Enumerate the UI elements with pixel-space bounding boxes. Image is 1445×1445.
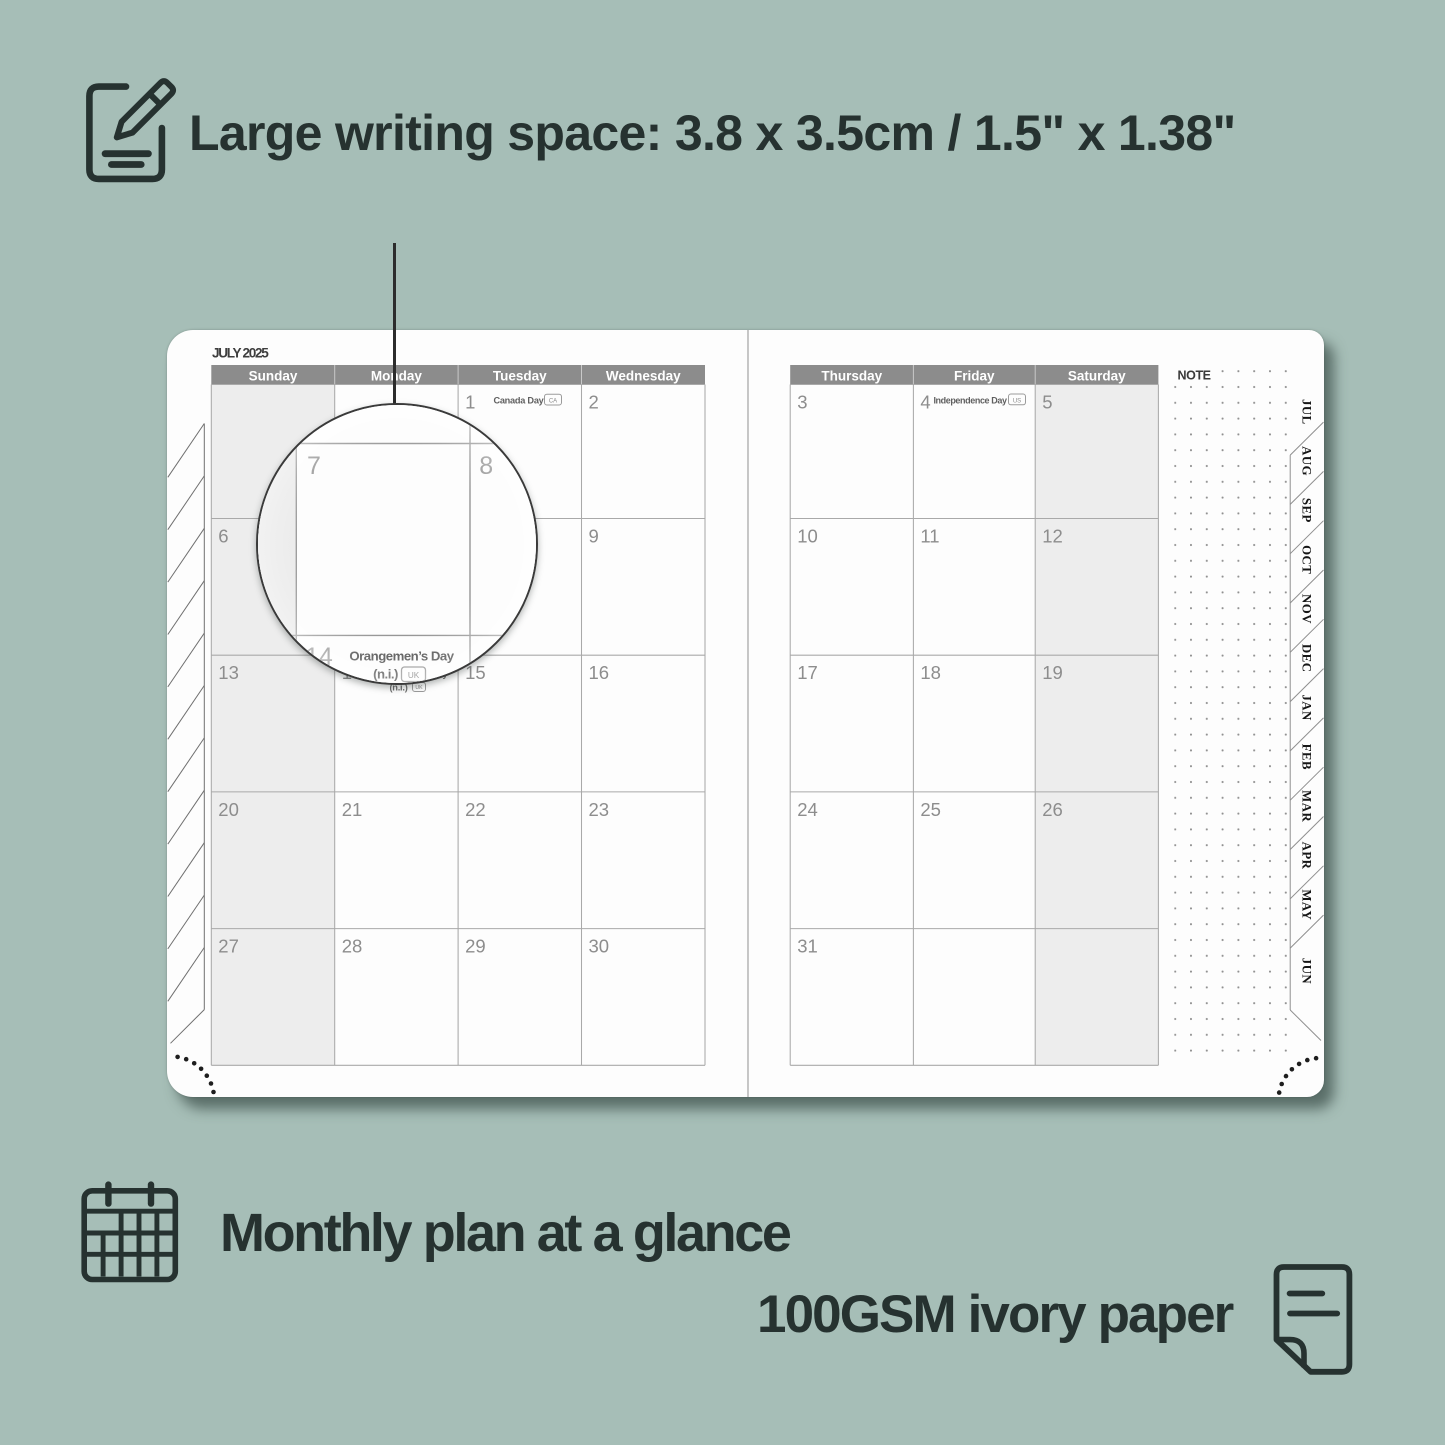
svg-text:JUL: JUL [1299,399,1313,425]
svg-text:NOTE: NOTE [1177,369,1210,383]
svg-text:17: 17 [797,662,818,683]
svg-text:JULY 2025: JULY 2025 [212,346,269,361]
svg-text:FEB: FEB [1299,744,1313,770]
svg-text:21: 21 [341,799,362,820]
svg-text:Wednesday: Wednesday [605,369,680,384]
svg-text:6: 6 [218,526,228,547]
svg-text:30: 30 [588,936,609,957]
svg-text:29: 29 [465,936,486,957]
svg-text:CA: CA [548,399,556,405]
svg-text:13: 13 [218,662,239,683]
svg-text:10: 10 [797,526,818,547]
svg-text:3: 3 [797,392,807,413]
svg-text:16: 16 [588,662,609,683]
svg-text:4: 4 [920,392,930,413]
svg-text:12: 12 [1042,526,1063,547]
svg-text:SEP: SEP [1299,498,1313,523]
svg-text:US: US [1012,398,1020,404]
svg-text:MAY: MAY [1299,889,1313,920]
svg-text:Friday: Friday [954,369,995,384]
svg-text:9: 9 [588,526,598,547]
svg-text:Tuesday: Tuesday [492,369,546,384]
svg-text:Sunday: Sunday [248,369,297,384]
svg-text:NOV: NOV [1299,594,1313,624]
svg-text:18: 18 [920,662,941,683]
svg-text:AUG: AUG [1299,446,1313,476]
svg-text:Thursday: Thursday [821,369,882,384]
svg-text:UK: UK [415,685,423,691]
svg-text:31: 31 [797,936,818,957]
svg-text:Independence Day: Independence Day [933,396,1007,406]
svg-text:25: 25 [920,799,941,820]
svg-text:APR: APR [1299,842,1313,870]
svg-text:JAN: JAN [1299,694,1313,721]
svg-text:28: 28 [341,936,362,957]
svg-text:23: 23 [588,799,609,820]
svg-text:5: 5 [1042,392,1052,413]
svg-text:MAR: MAR [1299,790,1313,822]
svg-text:22: 22 [465,799,486,820]
svg-text:OCT: OCT [1299,545,1313,574]
svg-text:27: 27 [218,936,239,957]
svg-text:26: 26 [1042,799,1063,820]
svg-text:20: 20 [218,799,239,820]
svg-text:JUN: JUN [1299,958,1313,985]
svg-text:2: 2 [588,392,598,413]
svg-text:24: 24 [797,799,818,820]
svg-text:19: 19 [1042,662,1063,683]
svg-text:Saturday: Saturday [1067,369,1125,384]
svg-text:DEC: DEC [1299,644,1313,673]
svg-text:11: 11 [920,526,939,547]
